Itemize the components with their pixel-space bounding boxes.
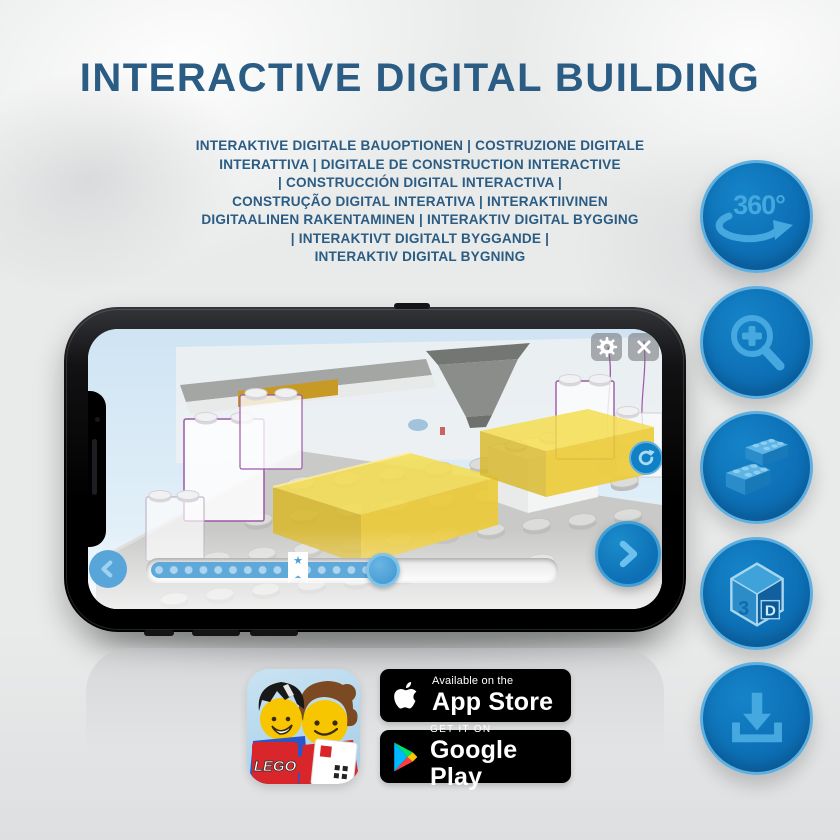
svg-text:3: 3 (738, 597, 749, 619)
phone-notch (88, 391, 106, 547)
speaker-slot (92, 439, 97, 495)
phone-side-button (250, 630, 298, 636)
lego-app-promo: INTERACTIVE DIGITAL BUILDING INTERAKTIVE… (0, 0, 840, 840)
subtitle-line: INTERAKTIV DIGITAL BYGNING (110, 248, 730, 267)
phone-screen: ★ (88, 329, 662, 609)
rotate-model-button[interactable] (629, 441, 662, 475)
gear-icon (596, 336, 618, 358)
app-store-badge[interactable]: Available on the App Store (380, 669, 571, 722)
phone-reflection (86, 648, 664, 788)
close-icon (634, 337, 654, 357)
subtitle-line: INTERAKTIVE DIGITALE BAUOPTIONEN | COSTR… (110, 137, 730, 156)
lego-minifigures-art: LEGO (247, 669, 360, 784)
google-play-name: Google Play (430, 737, 571, 791)
close-button[interactable] (628, 333, 659, 361)
page-title: INTERACTIVE DIGITAL BUILDING (0, 56, 840, 101)
3d-cube-icon: 3 D (719, 556, 795, 632)
subtitle-line: DIGITAALINEN RAKENTAMINEN | INTERAKTIV D… (110, 211, 730, 230)
feature-download-button[interactable] (700, 662, 813, 775)
phone-side-button (144, 630, 174, 636)
chevron-left-icon (97, 558, 119, 580)
multilingual-subtitle: INTERAKTIVE DIGITALE BAUOPTIONEN | COSTR… (110, 137, 730, 267)
lego-bricks-icon (718, 429, 796, 507)
google-play-badge[interactable]: GET IT ON Google Play (380, 730, 571, 783)
google-play-tagline: GET IT ON (430, 723, 571, 736)
google-play-icon (393, 742, 419, 772)
subtitle-line: | CONSTRUCCIÓN DIGITAL INTERACTIVA | (110, 174, 730, 193)
feature-3d-button[interactable]: 3 D (700, 537, 813, 650)
phone-side-button (192, 630, 240, 636)
build-progress-slider[interactable]: ★ (146, 558, 558, 582)
app-store-name: App Store (432, 689, 553, 716)
settings-button[interactable] (591, 333, 622, 361)
zoom-in-icon (722, 308, 792, 378)
slider-thumb[interactable] (366, 553, 400, 587)
subtitle-line: CONSTRUÇÃO DIGITAL INTERATIVA | INTERAKT… (110, 193, 730, 212)
download-tray-icon (722, 684, 792, 754)
progress-fill (151, 562, 389, 578)
360-rotate-icon: 360° (715, 184, 799, 250)
next-step-button[interactable] (595, 521, 661, 587)
lego-logo: LEGO (254, 758, 297, 775)
feature-zoom-button[interactable] (700, 286, 813, 399)
svg-text:D: D (764, 602, 775, 619)
feature-360-button[interactable]: 360° (700, 160, 813, 273)
lego-app-icon[interactable]: LEGO (247, 669, 360, 784)
chevron-right-icon (612, 538, 644, 570)
phone-side-button (394, 303, 430, 309)
app-store-tagline: Available on the (432, 675, 553, 688)
refresh-icon (636, 448, 656, 468)
apple-icon (393, 679, 421, 713)
subtitle-line: | INTERAKTIVT DIGITALT BYGGANDE | (110, 230, 730, 249)
star-icon: ★ (293, 555, 303, 567)
feature-bricks-button[interactable] (700, 411, 813, 524)
svg-text:360°: 360° (733, 190, 785, 220)
bookmark-marker: ★ (288, 552, 308, 583)
phone-mockup: ★ (64, 307, 686, 632)
previous-step-button[interactable] (89, 550, 127, 588)
front-camera (95, 417, 100, 422)
subtitle-line: INTERATTIVA | DIGITALE DE CONSTRUCTION I… (110, 156, 730, 175)
